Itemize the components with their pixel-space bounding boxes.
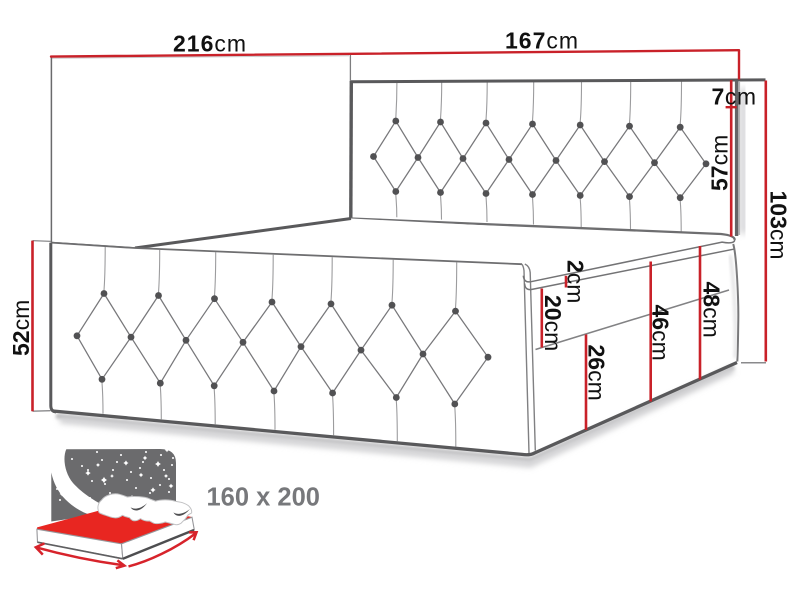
svg-text:26cm: 26cm bbox=[584, 345, 610, 401]
svg-text:103cm: 103cm bbox=[766, 191, 792, 260]
svg-text:46cm: 46cm bbox=[648, 305, 674, 361]
svg-text:20cm: 20cm bbox=[540, 295, 566, 351]
svg-text:52cm: 52cm bbox=[8, 300, 34, 356]
svg-text:57cm: 57cm bbox=[707, 135, 733, 191]
svg-text:167cm: 167cm bbox=[505, 28, 579, 54]
svg-text:160 x 200: 160 x 200 bbox=[207, 484, 320, 512]
svg-text:7cm: 7cm bbox=[712, 84, 757, 110]
svg-text:216cm: 216cm bbox=[173, 31, 247, 57]
svg-text:48cm: 48cm bbox=[699, 282, 725, 338]
